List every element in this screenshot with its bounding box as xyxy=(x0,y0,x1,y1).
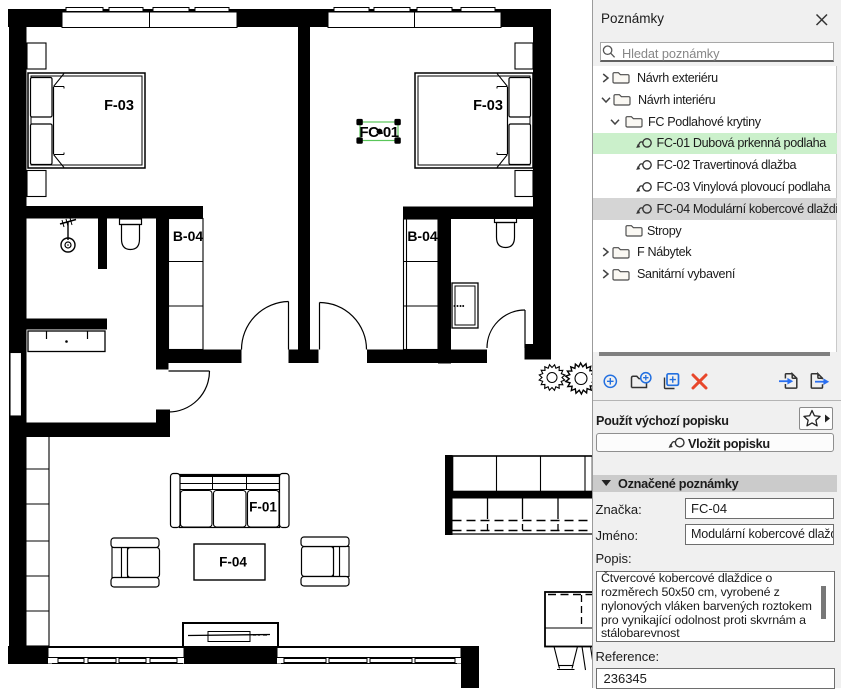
svg-text:F-04: F-04 xyxy=(219,555,247,570)
svg-text:B-04: B-04 xyxy=(173,228,204,244)
svg-text:F-03: F-03 xyxy=(104,98,134,114)
svg-text:F-03: F-03 xyxy=(473,98,503,114)
svg-text:F-01: F-01 xyxy=(249,500,277,515)
svg-text:B-04: B-04 xyxy=(407,228,438,244)
